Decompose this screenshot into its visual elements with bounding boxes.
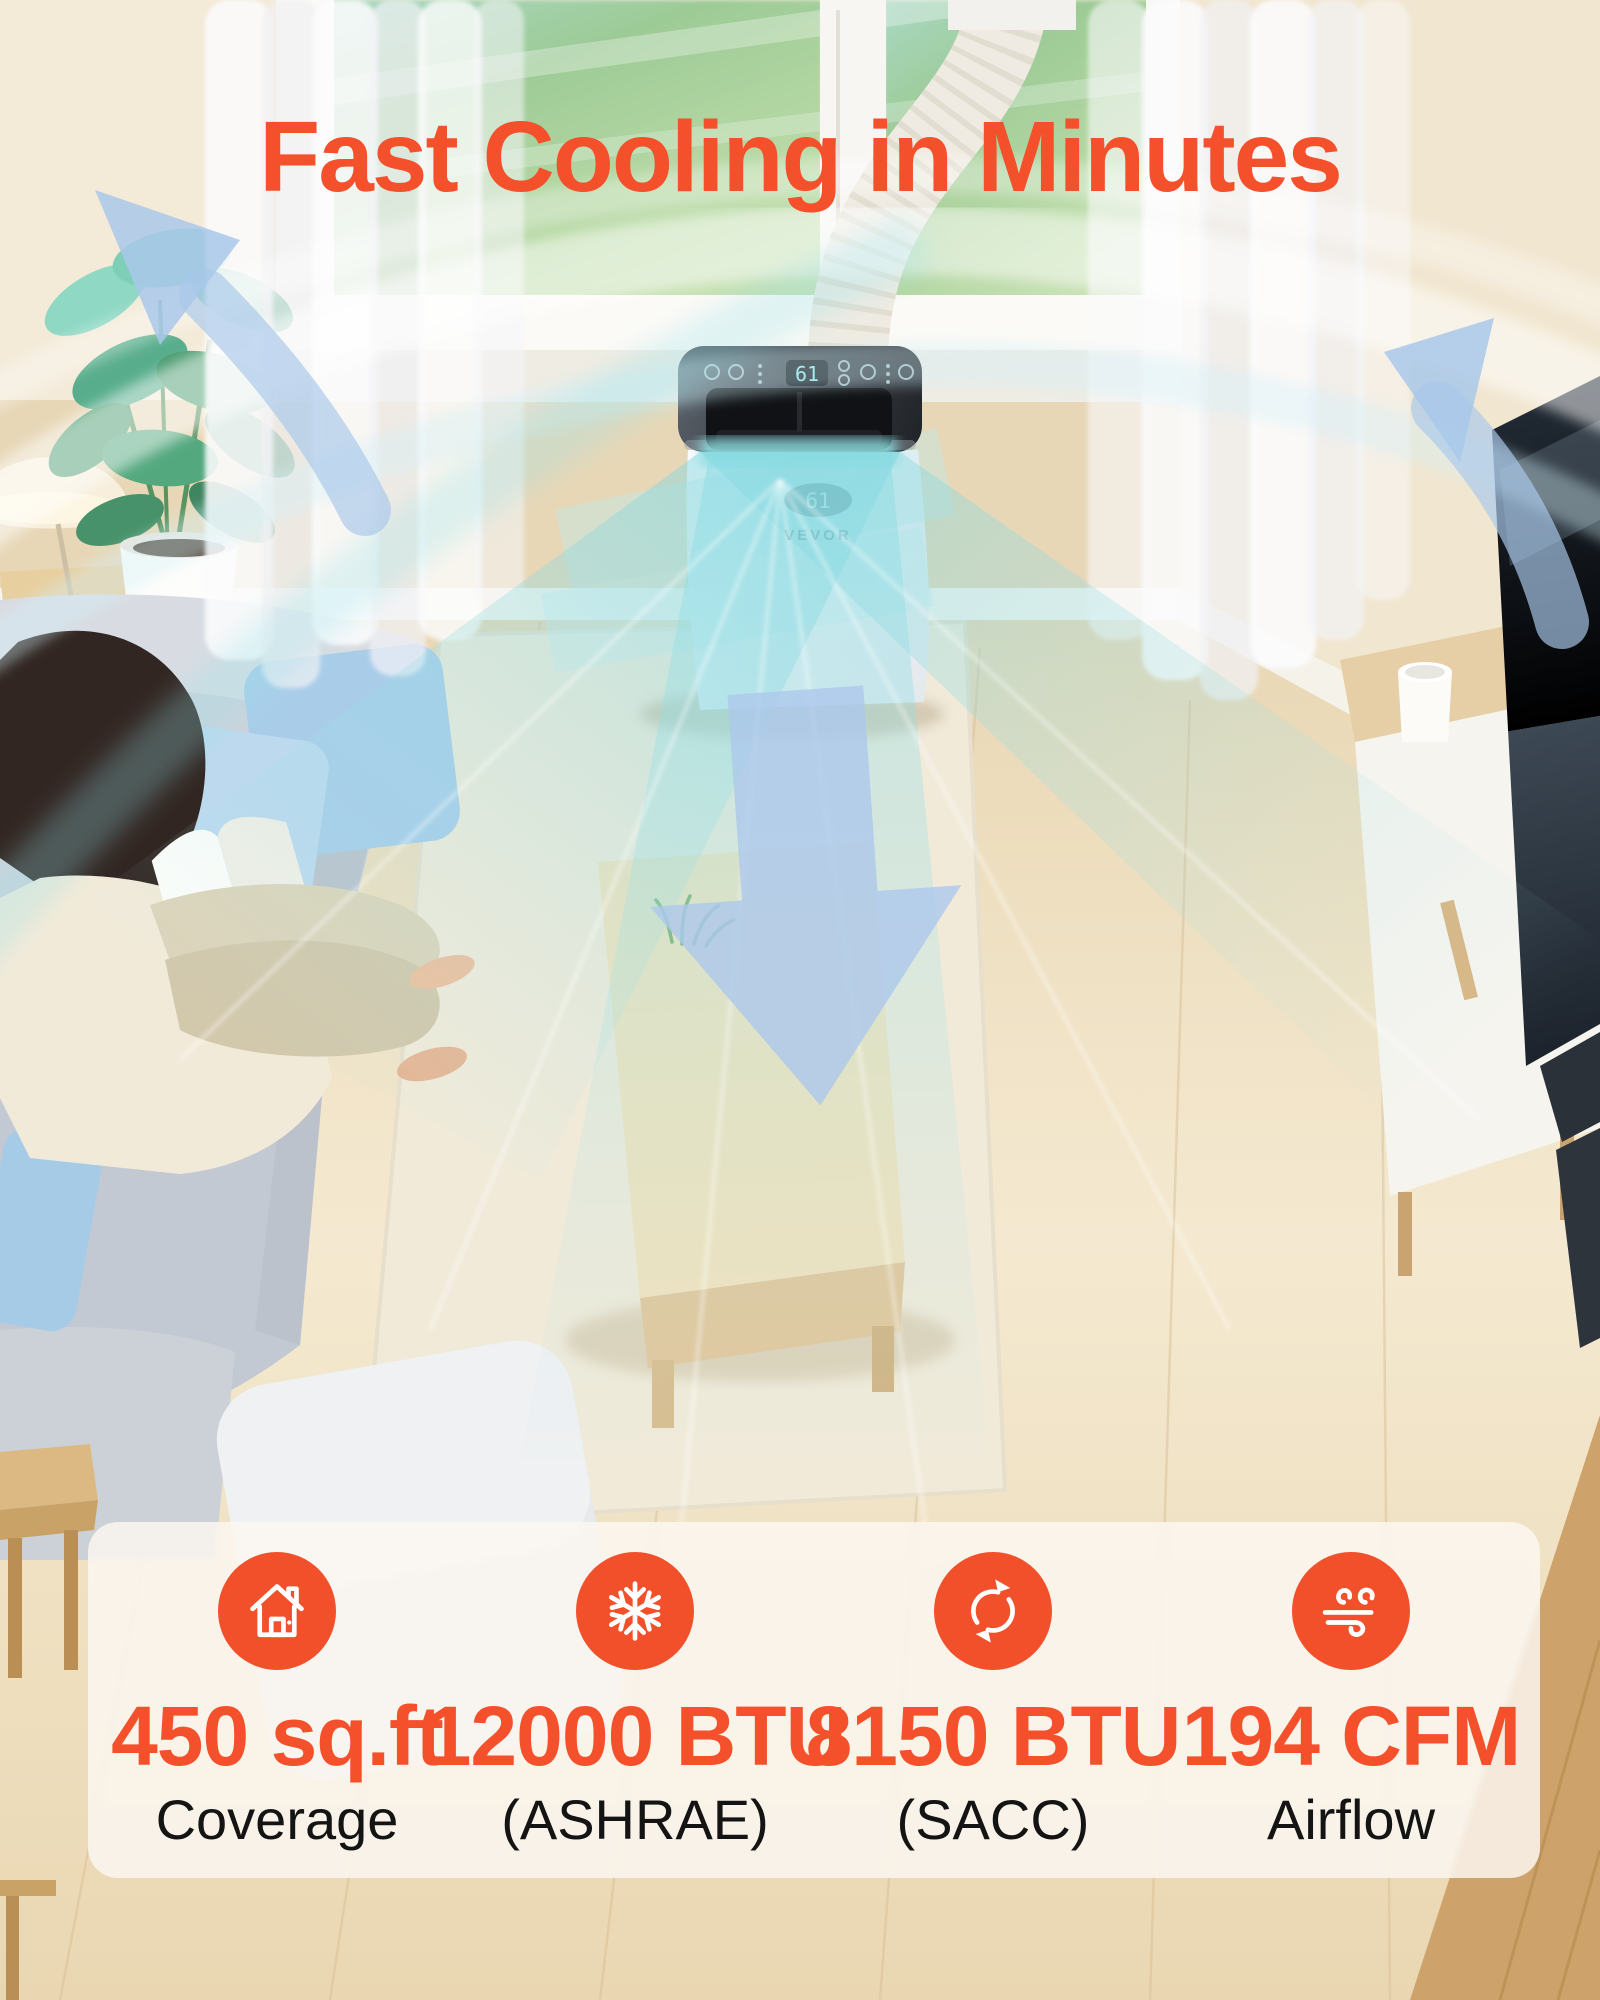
stat-btu-sacc: 8150 BTU (SACC) [814,1552,1172,1848]
snowflake-icon [576,1552,694,1670]
mug [1398,662,1452,742]
window-vent-bracket [948,0,1076,30]
stat-btu-ashrae: 12000 BTU (ASHRAE) [456,1552,814,1848]
stat-label: (SACC) [897,1792,1090,1848]
house-icon [218,1552,336,1670]
stat-coverage: 450 sq.ft Coverage [98,1552,456,1848]
headline: Fast Cooling in Minutes [0,100,1600,215]
stat-value: 194 CFM [1182,1694,1520,1778]
stat-label: Airflow [1267,1792,1435,1848]
stat-value: 450 sq.ft [111,1694,443,1778]
stats-card: 450 sq.ft Coverage [88,1522,1540,1878]
stat-value: 12000 BTU [425,1694,846,1778]
stat-label: (ASHRAE) [501,1792,769,1848]
sync-icon [934,1552,1052,1670]
promo-image: 61 VEVOR 61 [0,0,1600,2000]
stat-airflow: 194 CFM Airflow [1172,1552,1530,1848]
stat-value: 8150 BTU [806,1694,1181,1778]
wind-icon [1292,1552,1410,1670]
stat-label: Coverage [156,1792,399,1848]
